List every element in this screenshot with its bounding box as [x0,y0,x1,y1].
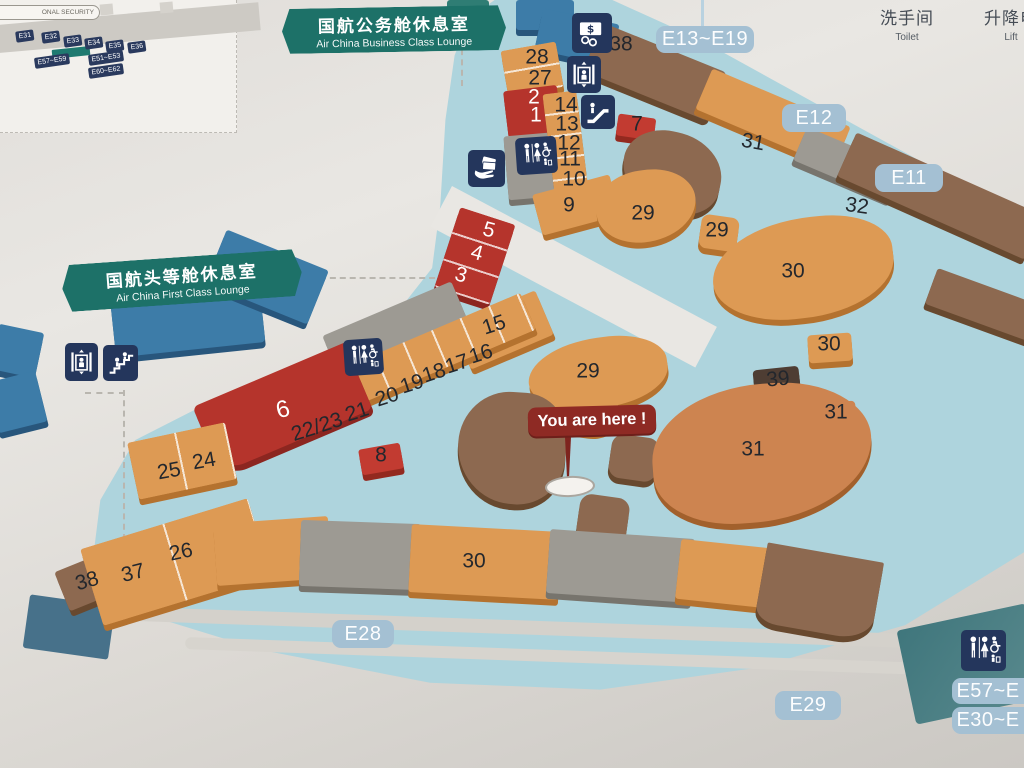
inset-gate-stub [160,1,174,13]
legend-lift-zh: 升降电 [982,4,1024,29]
legend-toilet-zh: 洗手间 [878,4,936,29]
left-wedge-b [0,371,48,434]
inset-chip-E36: E36 [127,40,147,53]
bottom-gray-a [299,520,421,590]
shop-number-8: 8 [375,445,387,466]
gate-label-E30-E: E30~E [952,707,1024,734]
shop-number-31: 31 [824,402,847,423]
security-capsule-label: ONAL SECURITY [0,5,100,20]
shop-number-31: 31 [741,439,764,460]
terminal-map-photo: 2827211413121110954338731292932303039312… [0,0,1024,768]
business-lounge-banner: 国航公务舱休息室 Air China Business Class Lounge [282,5,507,54]
shop-number-30: 30 [781,261,804,282]
you-are-here-sign: You are here ! [528,404,657,436]
stairs-icon [103,345,138,381]
inset-chip-E57-E59: E57~E59 [34,53,70,69]
gate-label-E13-E19: E13~E19 [656,26,754,53]
shop-number-11: 11 [559,149,581,170]
currency-exchange-icon: $ [572,13,612,53]
shop-number-29: 29 [576,361,599,382]
elevator-icon [567,56,601,93]
shop-number-10: 10 [562,169,585,190]
legend-toilet: 洗手间 Toilet [878,4,936,43]
left-wedge-a [0,324,44,379]
shop-number-9: 9 [563,195,575,216]
gate-label-E11: E11 [875,164,943,192]
gate-label-E29: E29 [775,691,841,720]
shop-number-28: 28 [525,47,548,68]
shop-number-38: 38 [609,34,632,55]
shops-24-25 [127,422,237,500]
shop-number-32: 32 [844,194,870,218]
inset-chip-E60-E62: E60~E62 [88,63,124,79]
business-lounge-banner-en: Air China Business Class Lounge [282,35,506,51]
gate-label-E28: E28 [332,620,394,648]
elevator-icon [65,343,98,381]
svg-text:$: $ [587,22,594,35]
gate-label-E57-E: E57~E [952,678,1024,704]
shop-number-39: 39 [765,367,790,390]
shop-number-37: 37 [119,560,147,586]
legend-lift-en: Lift [982,32,1024,43]
toilet-icon [515,136,558,176]
shop-number-29: 29 [705,220,728,241]
shop-number-25: 25 [156,459,183,484]
inset-chip-E34: E34 [84,36,104,49]
shop-number-31: 31 [740,130,767,155]
inset-gate-stub [100,3,114,15]
toilet-icon [343,338,384,377]
gate-label-E12: E12 [782,104,846,132]
toilet-icon [961,630,1006,671]
legend-lift: 升降电 Lift [982,4,1024,43]
bottom-gray-b [546,529,695,603]
shop-number-29: 29 [631,203,654,224]
escalator-icon [581,95,615,129]
shop-number-7: 7 [631,114,643,135]
shop-number-30: 30 [462,551,485,572]
legend-toilet-en: Toilet [878,32,936,43]
hand-banknotes-icon [468,150,505,187]
shop-number-26: 26 [167,539,194,564]
shop-number-30: 30 [817,334,840,355]
inset-overview-map: ONAL SECURITY E31E32E33E34E35E36E57~E59E… [0,0,237,133]
bottom-brown-end [754,542,884,641]
shop-number-24: 24 [191,449,218,474]
business-lounge-banner-zh: 国航公务舱休息室 [282,9,506,38]
shop-number-1: 1 [530,105,542,126]
brown-edge-strip [925,268,1024,342]
